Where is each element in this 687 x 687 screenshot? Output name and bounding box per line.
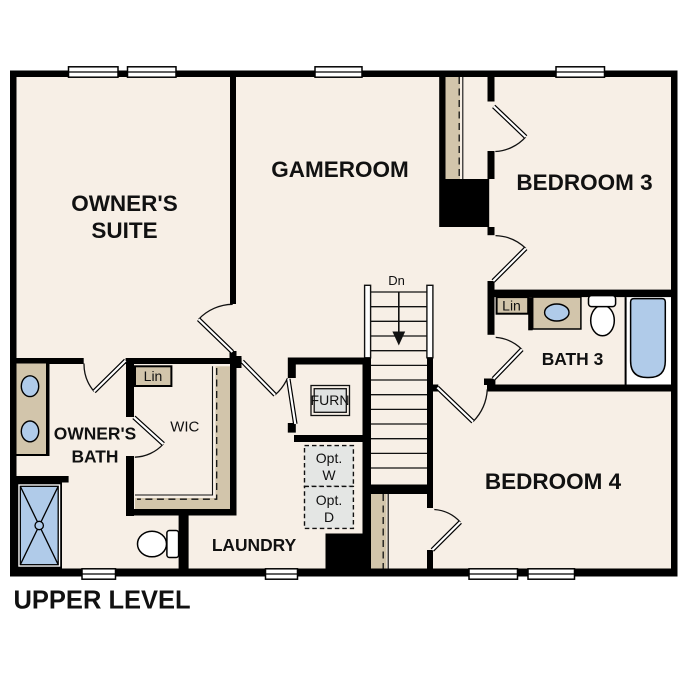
svg-text:OWNER'S: OWNER'S [54, 424, 136, 444]
svg-text:BEDROOM 4: BEDROOM 4 [485, 469, 622, 494]
svg-text:SUITE: SUITE [91, 218, 157, 243]
svg-text:Dn: Dn [388, 273, 405, 288]
svg-text:D: D [324, 509, 334, 525]
svg-text:GAMEROOM: GAMEROOM [271, 157, 409, 182]
svg-text:LAUNDRY: LAUNDRY [212, 535, 297, 555]
svg-text:W: W [322, 467, 336, 483]
svg-text:Opt.: Opt. [316, 450, 342, 466]
svg-text:BATH: BATH [71, 447, 118, 467]
svg-text:Lin: Lin [144, 368, 163, 384]
svg-text:FURN: FURN [311, 392, 350, 408]
svg-text:OWNER'S: OWNER'S [71, 191, 178, 216]
svg-text:BATH 3: BATH 3 [542, 349, 604, 369]
svg-text:WIC: WIC [170, 419, 199, 436]
svg-text:Lin: Lin [502, 298, 521, 314]
svg-text:UPPER LEVEL: UPPER LEVEL [14, 587, 191, 615]
svg-text:Opt.: Opt. [316, 492, 342, 508]
svg-text:BEDROOM 3: BEDROOM 3 [516, 170, 652, 195]
